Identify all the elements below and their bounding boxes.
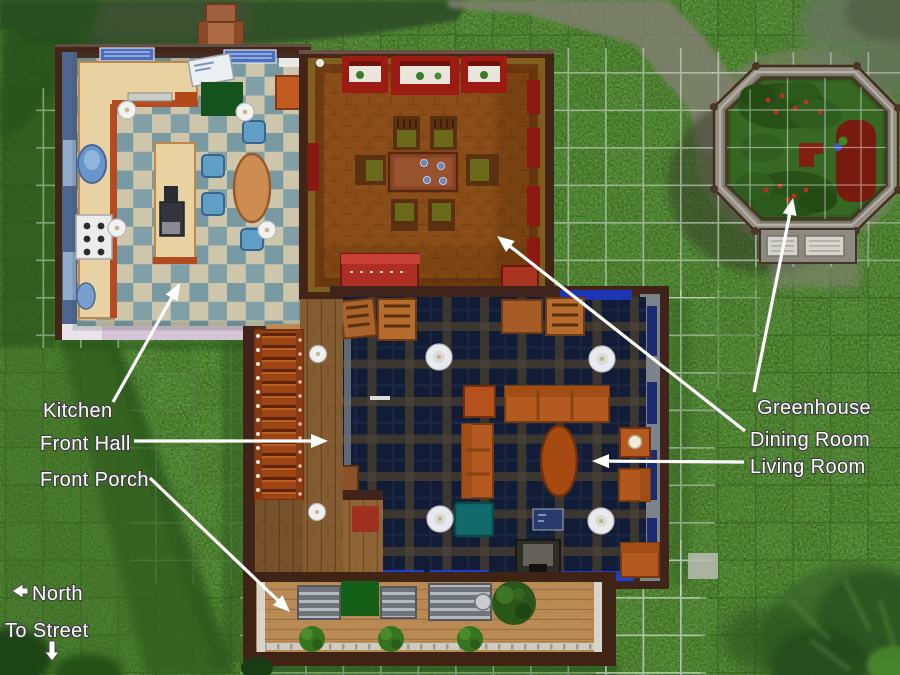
svg-text:Dining Room: Dining Room: [750, 429, 870, 451]
svg-text:Front Hall: Front Hall: [40, 433, 131, 455]
svg-text:Kitchen: Kitchen: [43, 400, 113, 422]
svg-text:Front Porch: Front Porch: [40, 469, 149, 491]
svg-text:Living Room: Living Room: [750, 456, 866, 478]
svg-text:Greenhouse: Greenhouse: [757, 397, 871, 419]
svg-text:North: North: [32, 583, 83, 605]
svg-text:To Street: To Street: [5, 620, 89, 642]
